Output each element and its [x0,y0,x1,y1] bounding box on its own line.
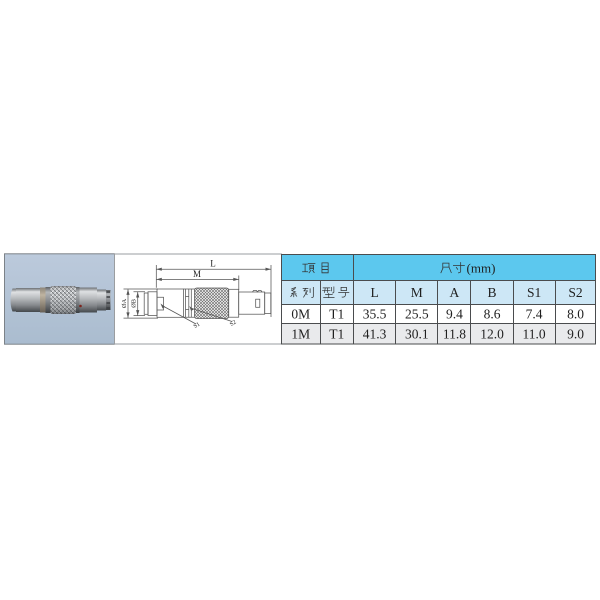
svg-text:25.5: 25.5 [405,307,429,322]
svg-text:8.0: 8.0 [567,307,584,322]
svg-text:12.0: 12.0 [480,327,504,342]
svg-text:7.4: 7.4 [526,307,543,322]
svg-text:T1: T1 [329,307,344,322]
svg-text:ØA: ØA [121,298,128,308]
svg-text:M: M [411,285,423,300]
svg-text:(mm): (mm) [467,260,496,275]
svg-text:S1: S1 [527,285,541,300]
svg-text:T1: T1 [329,327,344,342]
svg-text:A: A [450,285,460,300]
svg-text:41.3: 41.3 [363,327,387,342]
svg-text:1M: 1M [291,327,310,342]
svg-text:M: M [193,269,201,279]
svg-text:0M: 0M [291,307,310,322]
svg-text:35.5: 35.5 [363,307,387,322]
svg-text:B: B [487,285,496,300]
svg-text:30.1: 30.1 [405,327,429,342]
svg-text:11.0: 11.0 [523,327,546,342]
svg-text:11.8: 11.8 [443,327,466,342]
svg-text:ØB: ØB [131,299,138,308]
svg-text:9.4: 9.4 [446,307,463,322]
svg-text:L: L [210,259,216,269]
svg-text:9.0: 9.0 [567,327,584,342]
svg-text:L: L [370,285,378,300]
svg-text:8.6: 8.6 [484,307,501,322]
svg-text:S2: S2 [568,285,582,300]
